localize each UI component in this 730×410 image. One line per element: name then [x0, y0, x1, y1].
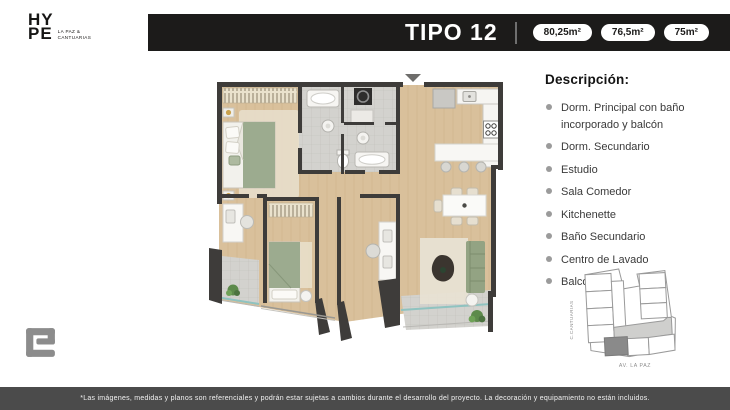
bullet-icon	[546, 166, 552, 172]
footer-bar: *Las imágenes, medidas y planos son refe…	[0, 387, 730, 410]
page-title: TIPO 12	[405, 19, 498, 46]
stove-icon	[484, 121, 499, 138]
list-item-label: Baño Secundario	[561, 229, 645, 246]
list-item-label: Estudio	[561, 162, 598, 179]
bullet-icon	[546, 143, 552, 149]
list-item: Kitchenette	[545, 207, 715, 224]
area-badge-covered: 76,5m²	[601, 24, 655, 41]
bullet-icon	[546, 104, 552, 110]
sofa	[466, 241, 485, 293]
street-label-bottom: AV. LA PAZ	[619, 363, 651, 369]
list-item: Dorm. Secundario	[545, 139, 715, 156]
header-divider	[515, 22, 517, 44]
list-item: Sala Comedor	[545, 184, 715, 201]
list-item: Dorm. Principal con baño incorporado y b…	[545, 100, 715, 133]
living-room	[420, 238, 485, 306]
sink-icon	[463, 92, 476, 102]
list-item-label: Dorm. Secundario	[561, 139, 650, 156]
bullet-icon	[546, 211, 552, 217]
list-item: Baño Secundario	[545, 229, 715, 246]
header-bar: TIPO 12 80,25m² 76,5m² 75m²	[148, 14, 730, 51]
street-label-left: C.CANTUARIAS	[569, 300, 574, 339]
bullet-icon	[546, 256, 552, 262]
floor-plan	[194, 64, 516, 356]
unit-highlight	[604, 337, 628, 356]
brand-logo: HY PE LA PAZ & CANTUARIAS	[28, 13, 91, 42]
area-badges: 80,25m² 76,5m² 75m²	[533, 24, 709, 41]
description-title: Descripción:	[545, 72, 715, 87]
bullet-icon	[546, 188, 552, 194]
brand-line2: PE	[28, 27, 54, 41]
location-keyplan: C.CANTUARIAS AV. LA PAZ	[563, 260, 715, 372]
bullet-icon	[546, 278, 552, 284]
developer-logo-icon	[22, 324, 59, 361]
balcony-left	[222, 256, 259, 307]
coffee-table	[432, 255, 454, 282]
entrance-arrow-icon	[405, 74, 421, 82]
bullet-icon	[546, 233, 552, 239]
footer-disclaimer: *Las imágenes, medidas y planos son refe…	[80, 395, 649, 402]
list-item: Estudio	[545, 162, 715, 179]
bed	[223, 122, 275, 188]
area-badge-inner: 75m²	[664, 24, 709, 41]
list-item-label: Kitchenette	[561, 207, 616, 224]
list-item-label: Dorm. Principal con baño incorporado y b…	[561, 100, 701, 133]
brand-sub-line2: CANTUARIAS	[58, 35, 92, 41]
list-item-label: Sala Comedor	[561, 184, 631, 201]
area-badge-total: 80,25m²	[533, 24, 592, 41]
bathrooms	[298, 85, 400, 172]
brand-wordmark: HY PE	[28, 13, 54, 42]
brand-subtitle: LA PAZ & CANTUARIAS	[58, 29, 92, 40]
washer-icon	[354, 88, 372, 105]
